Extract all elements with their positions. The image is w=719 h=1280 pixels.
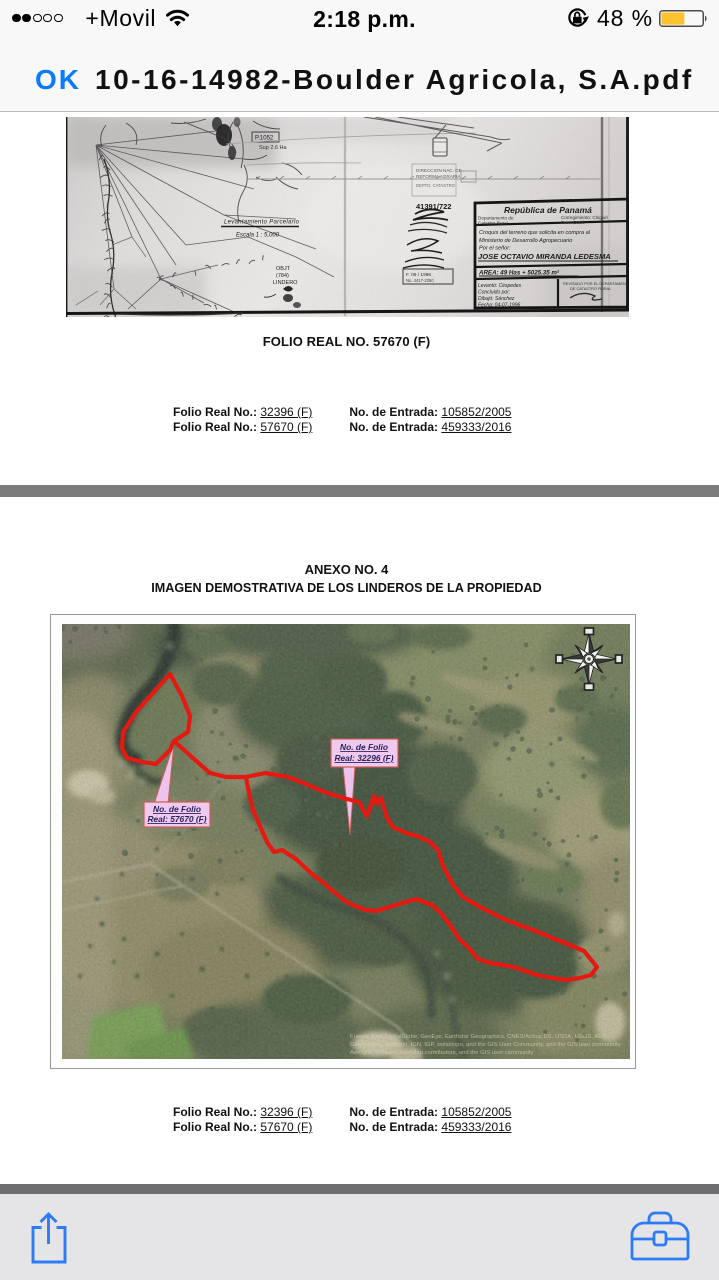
svg-text:LINDERO: LINDERO: [273, 280, 298, 286]
svg-text:Aerogrid, © OpenStreetMap cont: Aerogrid, © OpenStreetMap contributors, …: [350, 1049, 533, 1056]
svg-text:Por el señor:: Por el señor:: [479, 246, 511, 252]
svg-text:Croquis del terreno que solici: Croquis del terreno que solicita en comp…: [479, 230, 591, 236]
svg-text:No. de Folio: No. de Folio: [153, 804, 201, 814]
svg-text:DE CATASTRO RURAL: DE CATASTRO RURAL: [570, 286, 612, 291]
svg-text:No. de Folio: No. de Folio: [340, 742, 388, 752]
svg-text:Fuente: Esri, DigitalGlobe, Ge: Fuente: Esri, DigitalGlobe, GeoEye, Eart…: [350, 1034, 608, 1040]
svg-text:Levantamiento Parcelario: Levantamiento Parcelario: [224, 220, 300, 226]
svg-text:Sup 2.6 Ha: Sup 2.6 Ha: [259, 145, 287, 151]
svg-text:Prov: Coclé: Prov: Coclé: [561, 220, 585, 225]
svg-text:Escala 1 : 5,000: Escala 1 : 5,000: [236, 233, 280, 239]
svg-text:(784): (784): [276, 273, 289, 279]
svg-text:Dibujó: Sánchez: Dibujó: Sánchez: [478, 296, 515, 302]
svg-text:Getmapping, Aerogrid, IGN, IGP: Getmapping, Aerogrid, IGN, IGP, swisstop…: [350, 1042, 621, 1048]
svg-text:DEPTO. CATASTRO: DEPTO. CATASTRO: [416, 183, 456, 188]
svg-text:Catastro Rural: Catastro Rural: [478, 221, 508, 226]
svg-text:AREA: 49 Has + 5025.35 m²: AREA: 49 Has + 5025.35 m²: [478, 270, 560, 277]
svg-text:Ministerio de Desarrollo Agrop: Ministerio de Desarrollo Agropecuario: [479, 238, 572, 244]
svg-text:República de Panamá: República de Panamá: [504, 205, 592, 215]
svg-text:Concluido por:: Concluido por:: [478, 290, 511, 296]
svg-text:Levantó: Céspedes: Levantó: Céspedes: [478, 283, 522, 289]
svg-text:No. 4417-2260: No. 4417-2260: [406, 278, 434, 283]
svg-text:Real: 57670 (F): Real: 57670 (F): [147, 814, 206, 824]
svg-text:DIRECCION NAC. DE: DIRECCION NAC. DE: [416, 168, 462, 173]
svg-text:OBJT: OBJT: [276, 266, 291, 272]
svg-text:JOSE OCTAVIO MIRANDA LEDESMA: JOSE OCTAVIO MIRANDA LEDESMA: [478, 252, 611, 261]
svg-text:Fecha: 04-07-1996: Fecha: 04-07-1996: [478, 303, 520, 309]
svg-text:Real: 32296 (F): Real: 32296 (F): [334, 753, 393, 763]
svg-text:REFORMA AGRARIA: REFORMA AGRARIA: [416, 174, 461, 179]
